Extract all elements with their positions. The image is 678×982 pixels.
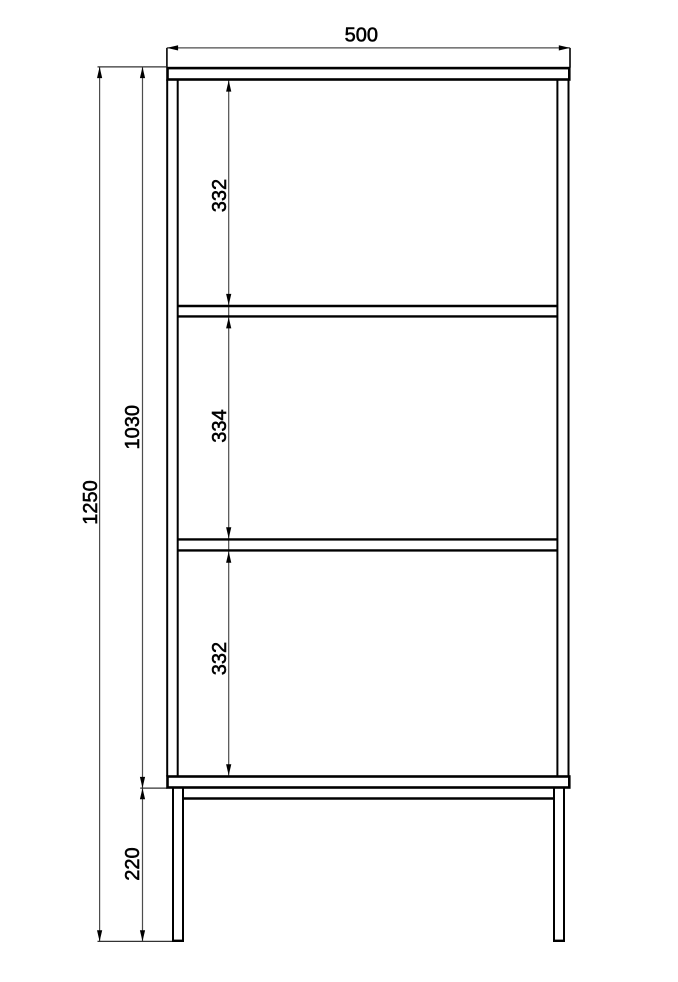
- svg-text:1250: 1250: [80, 480, 102, 525]
- svg-text:332: 332: [209, 642, 231, 675]
- svg-text:334: 334: [209, 409, 231, 442]
- svg-text:332: 332: [209, 179, 231, 212]
- svg-text:500: 500: [345, 24, 378, 46]
- svg-text:1030: 1030: [122, 405, 144, 450]
- svg-text:220: 220: [122, 847, 144, 880]
